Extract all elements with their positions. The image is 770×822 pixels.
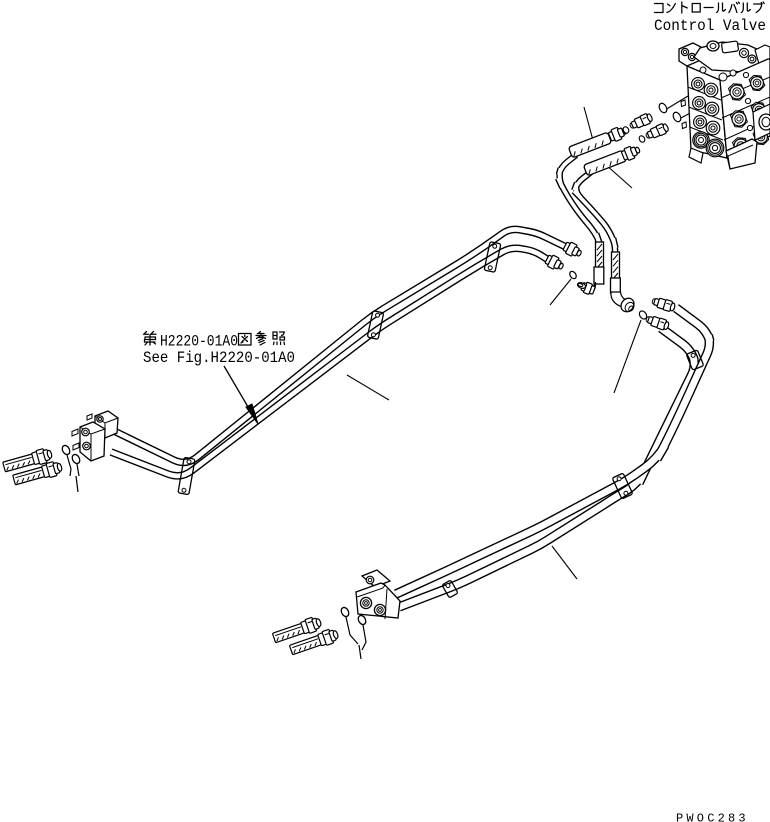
svg-text:See Fig.H2220-01A0: See Fig.H2220-01A0 — [143, 349, 295, 367]
svg-text:Control Valve: Control Valve — [654, 17, 766, 35]
svg-text:H2220-01A0: H2220-01A0 — [160, 333, 238, 351]
svg-text:PWOC283: PWOC283 — [676, 812, 749, 822]
